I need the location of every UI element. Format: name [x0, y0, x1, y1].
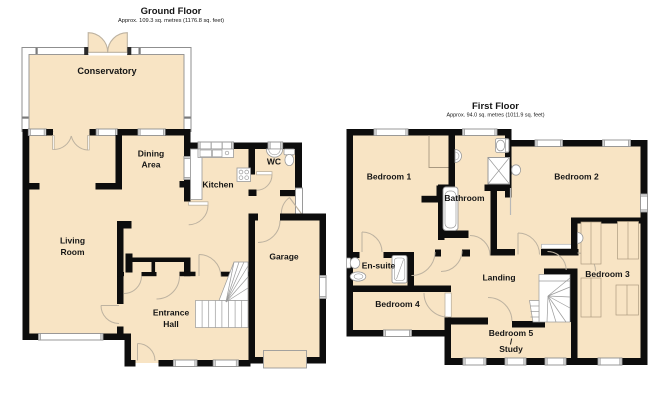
svg-text:Study: Study [499, 344, 523, 354]
svg-text:Room: Room [60, 247, 85, 257]
svg-text:Entrance: Entrance [153, 308, 190, 318]
svg-text:Garage: Garage [269, 252, 299, 262]
svg-text:Ground Floor: Ground Floor [141, 6, 202, 17]
svg-text:Hall: Hall [163, 319, 179, 329]
svg-text:Landing: Landing [482, 273, 515, 283]
svg-text:WC: WC [267, 157, 281, 167]
svg-text:Dining: Dining [138, 149, 164, 159]
svg-text:En-suite: En-suite [362, 261, 396, 271]
svg-text:Conservatory: Conservatory [77, 66, 137, 76]
svg-text:Bedroom 2: Bedroom 2 [554, 172, 599, 182]
svg-text:Bathroom: Bathroom [444, 193, 485, 203]
svg-text:Bedroom 3: Bedroom 3 [585, 269, 630, 279]
svg-text:Approx. 109.3 sq. metres (1176: Approx. 109.3 sq. metres (1176.8 sq. fee… [118, 18, 224, 24]
svg-text:Bedroom 4: Bedroom 4 [375, 299, 420, 309]
svg-text:Bedroom 1: Bedroom 1 [367, 172, 412, 182]
svg-text:Area: Area [142, 160, 161, 170]
svg-text:Approx. 94.0 sq. metres (1011.: Approx. 94.0 sq. metres (1011.9 sq. feet… [447, 112, 545, 118]
svg-text:Kitchen: Kitchen [202, 180, 233, 190]
svg-text:First Floor: First Floor [472, 101, 519, 112]
svg-text:Living: Living [60, 236, 85, 246]
